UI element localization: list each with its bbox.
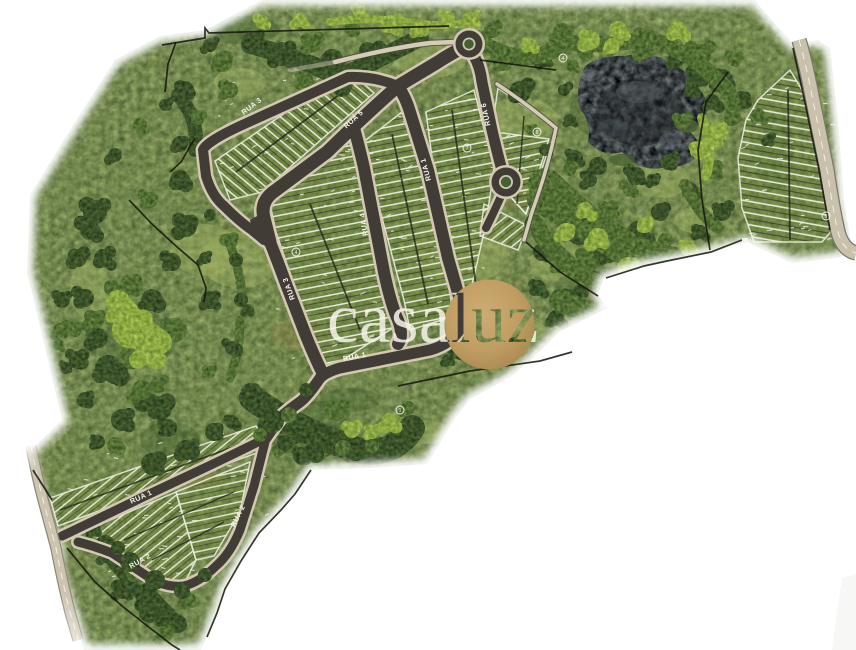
svg-text:1: 1: [399, 408, 402, 414]
svg-text:4: 4: [295, 250, 298, 256]
svg-text:4: 4: [562, 56, 565, 62]
svg-text:7: 7: [466, 146, 469, 152]
svg-text:casaluz: casaluz: [327, 280, 539, 358]
svg-text:9: 9: [825, 214, 828, 220]
svg-text:8: 8: [536, 130, 539, 136]
